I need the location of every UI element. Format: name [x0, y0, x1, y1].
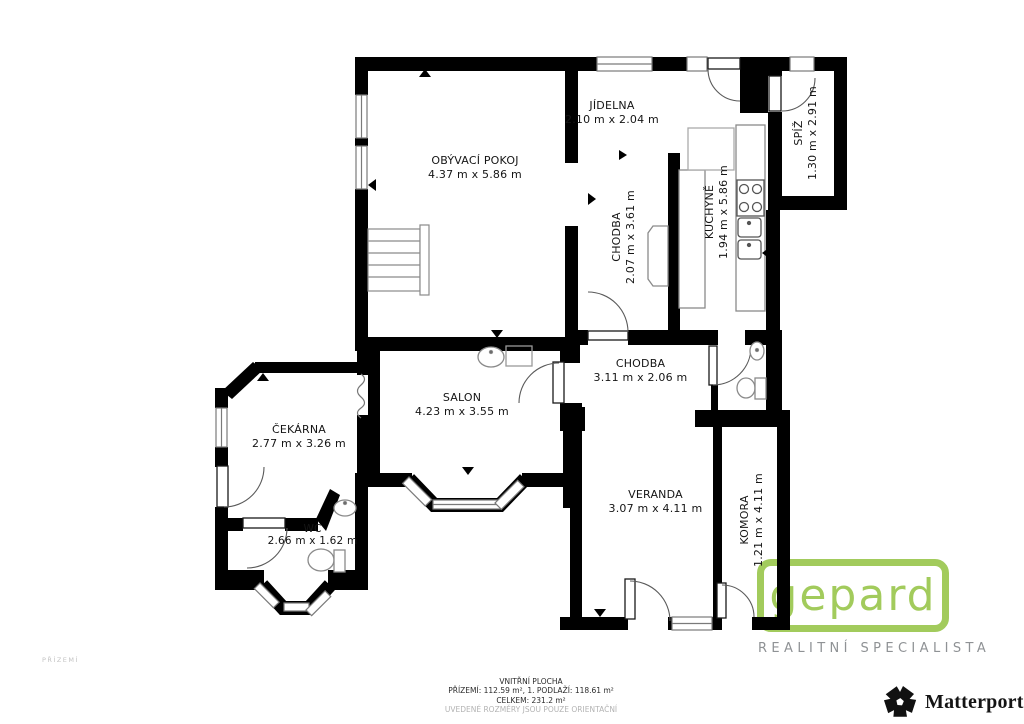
matterport-pinwheel-icon	[882, 684, 918, 720]
room-label-jidelna: JÍDELNA 2.10 m x 2.04 m	[552, 99, 672, 126]
floor-plan-drawing	[0, 0, 1024, 724]
room-label-spiz: SPÍŽ 1.30 m x 2.91 m	[792, 53, 820, 213]
matterport-logo: Matterport’	[882, 684, 1024, 720]
hall-wardrobe	[648, 226, 668, 286]
floor-level-tag: PŘÍZEMÍ	[42, 656, 79, 664]
area-summary-disclaimer: UVEDENÉ ROZMĚRY JSOU POUZE ORIENTAČNÍ	[381, 705, 681, 714]
room-label-wc: WC 2.66 m x 1.62 m	[250, 523, 375, 547]
toilet-room-fixtures	[737, 342, 766, 399]
area-summary-floors: PŘÍZEMÍ: 112.59 m², 1. PODLAŽÍ: 118.61 m…	[381, 686, 681, 695]
opening-squiggle	[358, 374, 365, 418]
area-summary-total: CELKEM: 231.2 m²	[381, 696, 681, 705]
gepard-tagline: REALITNÍ SPECIALISTA	[758, 641, 958, 656]
matterport-wordmark: Matterport’	[925, 691, 1024, 714]
room-label-chodba-horni: CHODBA 2.07 m x 3.61 m	[610, 157, 638, 317]
stairs	[368, 225, 429, 295]
kitchen-counter-left	[679, 170, 705, 308]
area-summary: VNITŘNÍ PLOCHA PŘÍZEMÍ: 112.59 m², 1. PO…	[381, 677, 681, 715]
floorplan-page: gepard REALITNÍ SPECIALISTA	[0, 0, 1024, 724]
room-label-komora: KOMORA 1.21 m x 4.11 m	[738, 440, 766, 600]
room-label-chodba-dolni: CHODBA 3.11 m x 2.06 m	[578, 357, 703, 384]
room-label-kuchyne: KUCHYNĚ 1.94 m x 5.86 m	[703, 132, 731, 292]
area-summary-title: VNITŘNÍ PLOCHA	[381, 677, 681, 686]
room-label-obyvaci-pokoj: OBÝVACÍ POKOJ 4.37 m x 5.86 m	[410, 154, 540, 181]
room-label-cekarna: ČEKÁRNA 2.77 m x 3.26 m	[235, 423, 363, 450]
room-label-veranda: VERANDA 3.07 m x 4.11 m	[593, 488, 718, 515]
room-label-salon: SALON 4.23 m x 3.55 m	[398, 391, 526, 418]
